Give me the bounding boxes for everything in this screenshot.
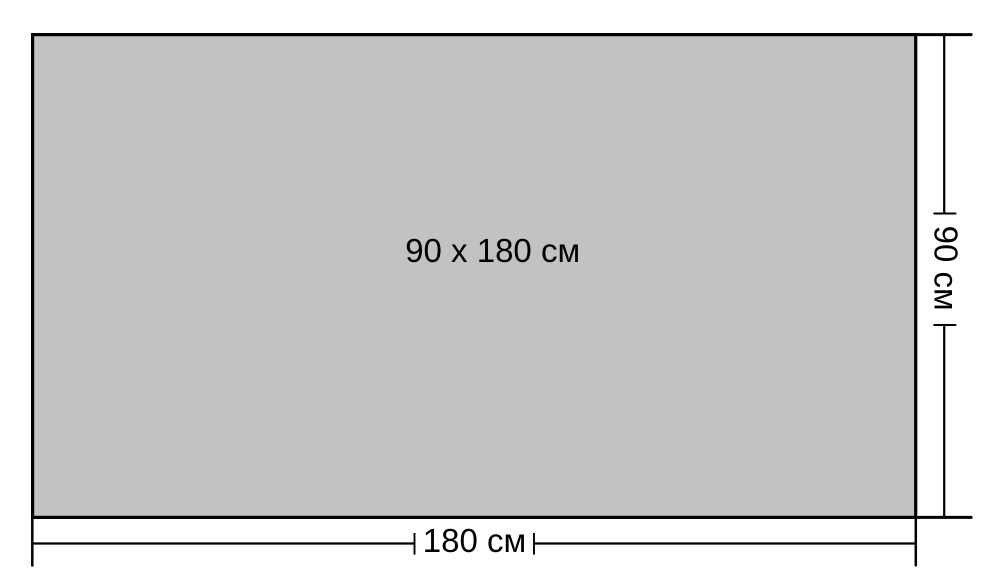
svg-text:90 см: 90 см (928, 226, 965, 311)
svg-text:180 см: 180 см (423, 522, 526, 559)
svg-text:90 x 180 см: 90 x 180 см (405, 232, 580, 269)
